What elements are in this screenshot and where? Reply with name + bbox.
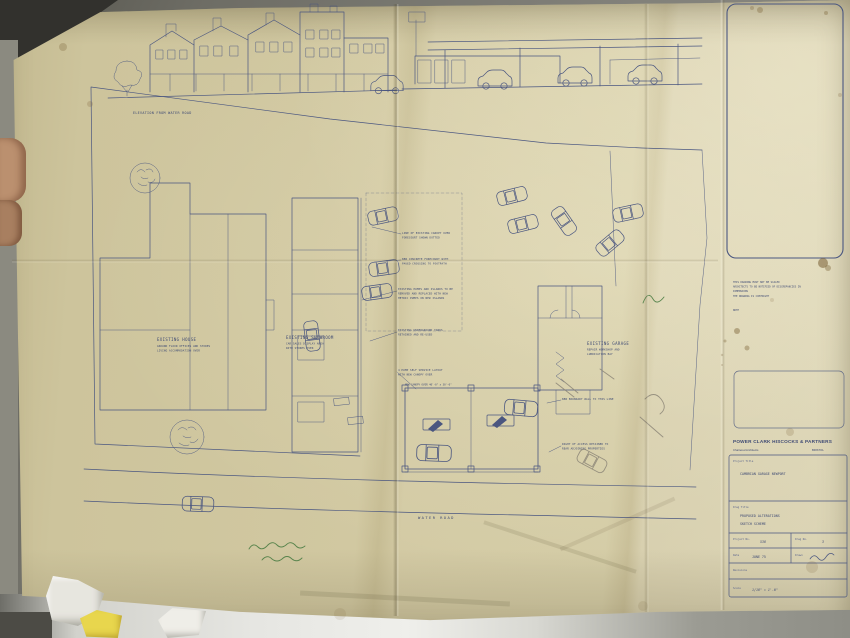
table-shadow-corner	[0, 612, 52, 638]
finger-holding-paper	[0, 138, 26, 202]
drawing-sheet	[0, 0, 850, 638]
photograph-of-architectural-drawing: ELEVATION FROM WATER ROAD	[0, 0, 850, 638]
finger-holding-paper	[0, 200, 22, 246]
